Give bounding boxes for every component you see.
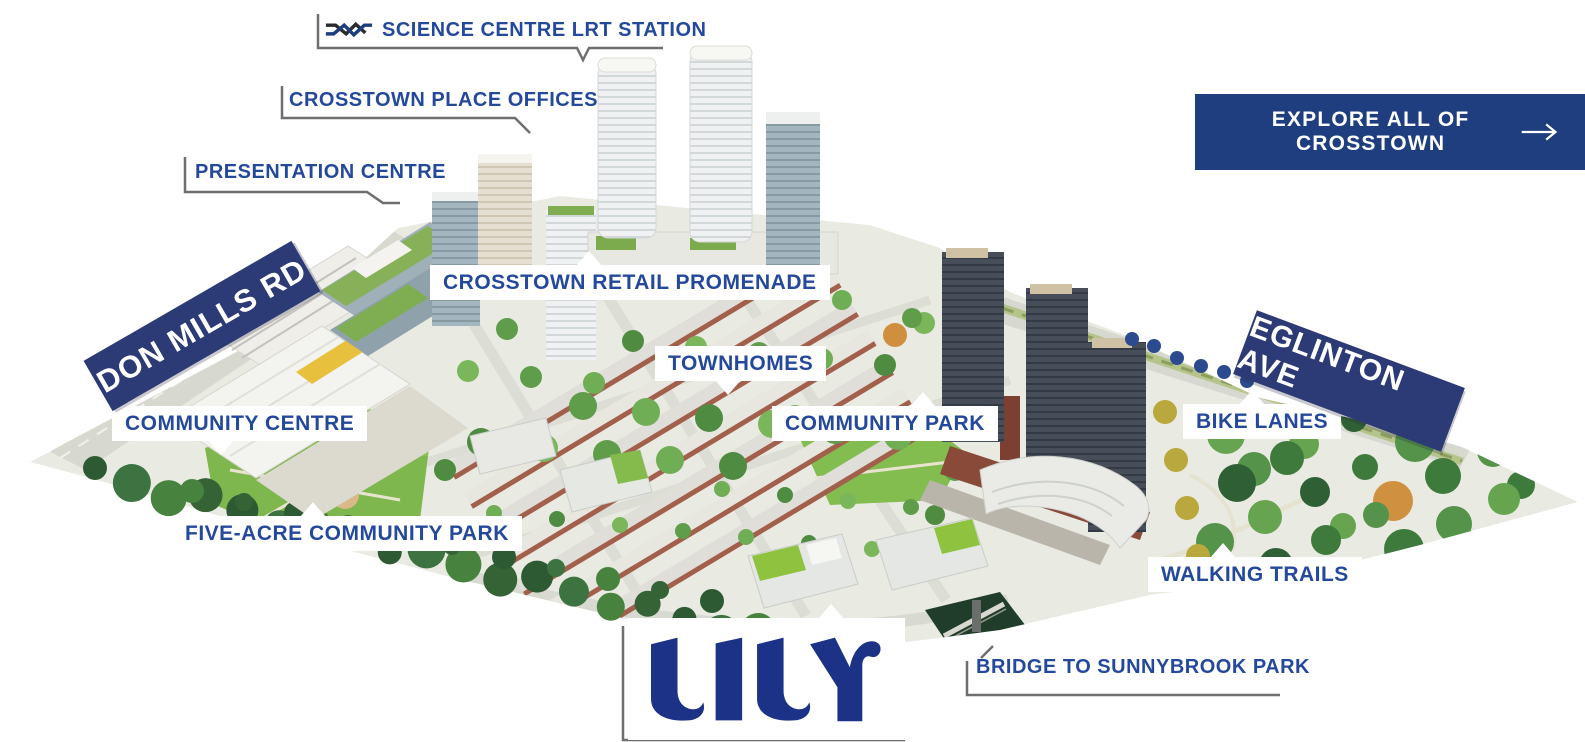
label-pointer bbox=[910, 392, 936, 407]
callout-townhomes: TOWNHOMES bbox=[655, 346, 826, 381]
callout-label: COMMUNITY PARK bbox=[785, 412, 985, 435]
callout-bridge-to-sunnybrook-park: BRIDGE TO SUNNYBROOK PARK bbox=[956, 644, 1296, 702]
explore-all-of-crosstown-button[interactable]: EXPLORE ALL OF CROSSTOWN bbox=[1195, 94, 1585, 170]
arrow-right-icon bbox=[1520, 120, 1559, 144]
callout-label: FIVE-ACRE COMMUNITY PARK bbox=[185, 522, 509, 545]
label-pointer bbox=[1239, 390, 1265, 405]
label-pointer bbox=[715, 380, 741, 395]
callout-bike-lanes: BIKE LANES bbox=[1183, 404, 1341, 439]
callout-five-acre-community-park: FIVE-ACRE COMMUNITY PARK bbox=[172, 516, 522, 551]
callout-walking-trails: WALKING TRAILS bbox=[1148, 557, 1362, 592]
crosstown-lrt-logo-icon bbox=[324, 17, 374, 43]
callout-community-centre: COMMUNITY CENTRE bbox=[112, 406, 367, 441]
callout-label: CROSSTOWN RETAIL PROMENADE bbox=[443, 271, 817, 294]
callout-label: SCIENCE CENTRE LRT STATION bbox=[382, 19, 706, 42]
callout-label: BRIDGE TO SUNNYBROOK PARK bbox=[976, 656, 1310, 679]
callout-presentation-centre: PRESENTATION CENTRE bbox=[176, 150, 436, 210]
callout-label: TOWNHOMES bbox=[668, 352, 813, 375]
label-pointer bbox=[576, 251, 602, 266]
callout-crosstown-place-offices: CROSSTOWN PLACE OFFICES bbox=[273, 80, 573, 140]
cta-label: EXPLORE ALL OF CROSSTOWN bbox=[1221, 108, 1520, 156]
label-pointer bbox=[818, 604, 844, 619]
label-pointer bbox=[208, 440, 234, 455]
lily-logo-block: LILY bbox=[620, 600, 920, 742]
callout-community-park: COMMUNITY PARK bbox=[772, 406, 998, 441]
callout-label: WALKING TRAILS bbox=[1161, 563, 1349, 586]
callout-science-centre-lrt-station: SCIENCE CENTRE LRT STATION bbox=[308, 6, 678, 66]
lily-logo bbox=[651, 635, 883, 723]
callout-label: PRESENTATION CENTRE bbox=[195, 161, 446, 184]
crosstown-masterplan-page: SCIENCE CENTRE LRT STATION CROSSTOWN PLA… bbox=[0, 0, 1585, 742]
callout-label: COMMUNITY CENTRE bbox=[125, 412, 354, 435]
lily-logo-box: LILY bbox=[628, 618, 905, 740]
callout-label: BIKE LANES bbox=[1196, 410, 1328, 433]
label-pointer bbox=[1210, 543, 1236, 558]
callout-crosstown-retail-promenade: CROSSTOWN RETAIL PROMENADE bbox=[430, 265, 830, 300]
callout-label: CROSSTOWN PLACE OFFICES bbox=[289, 89, 598, 112]
label-pointer bbox=[300, 502, 326, 517]
